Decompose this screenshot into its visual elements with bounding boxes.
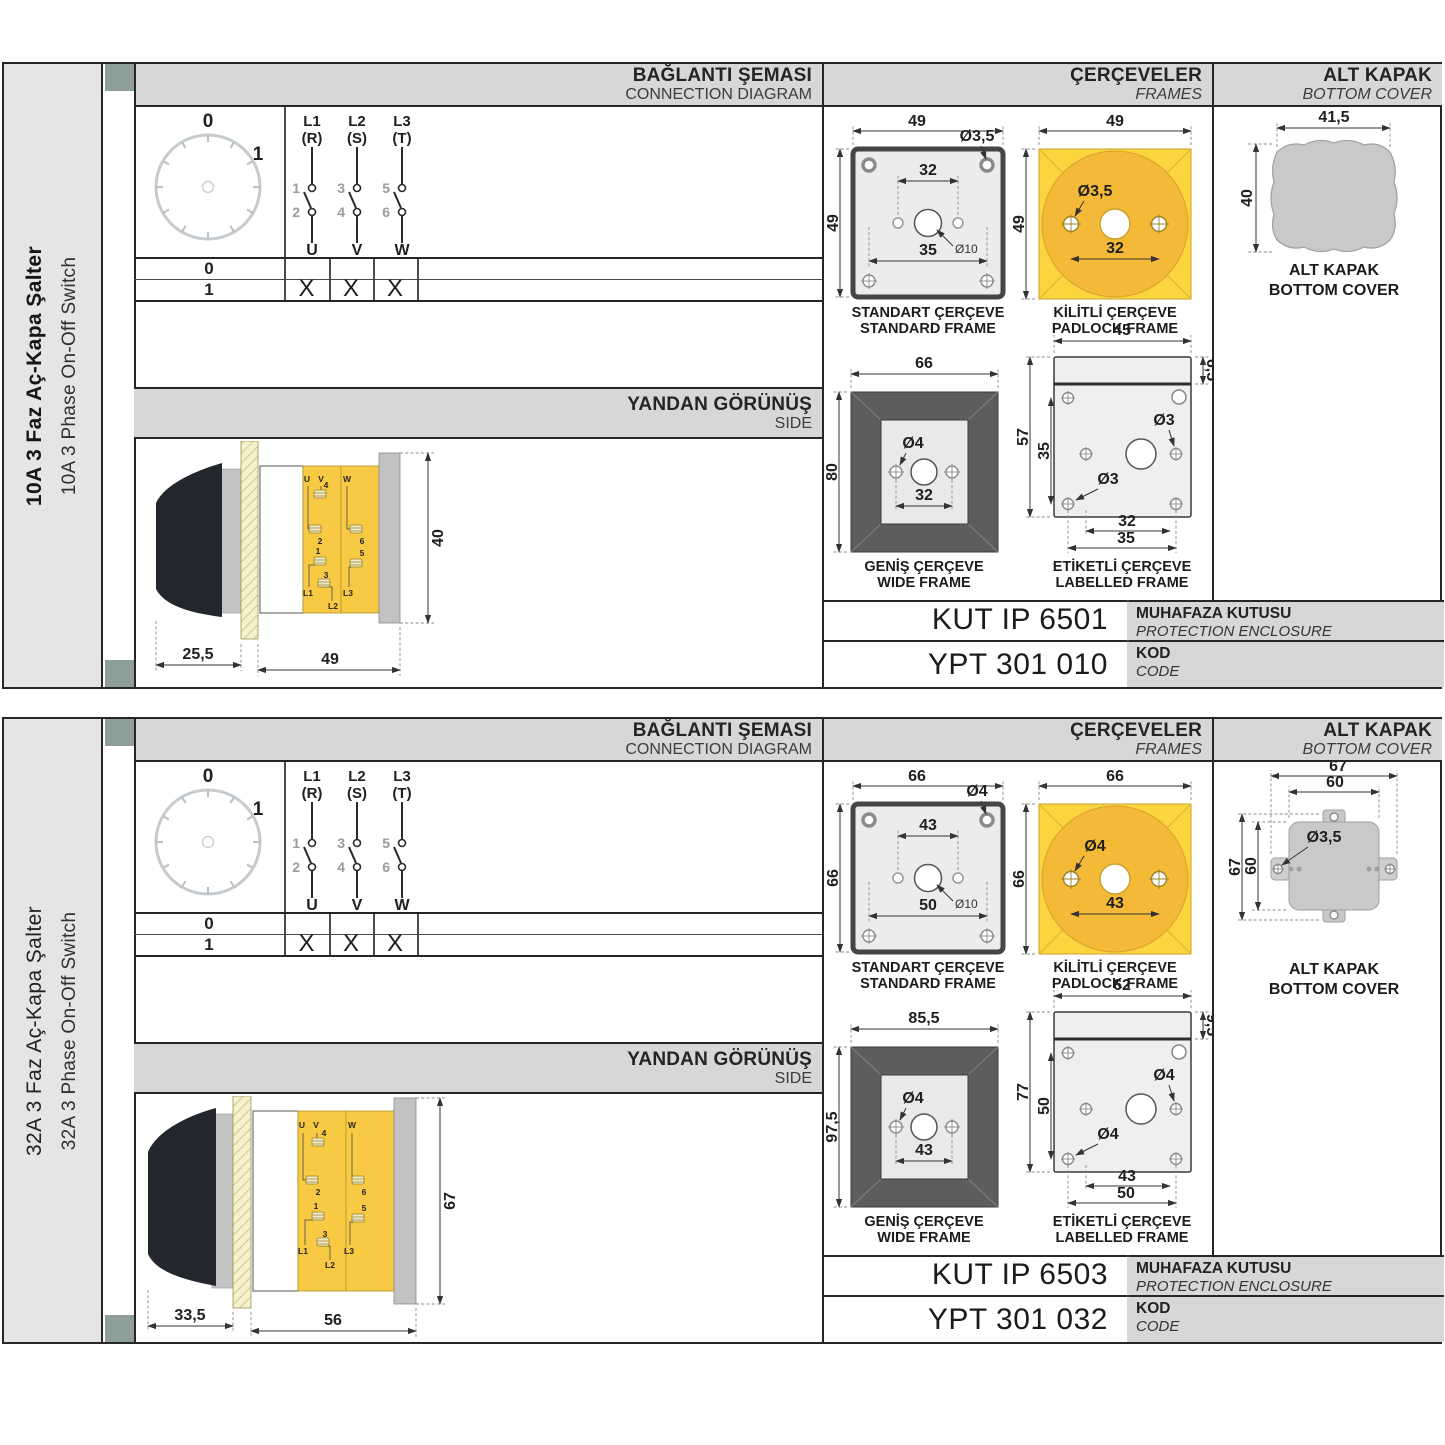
phase-l3: L3 (T) 5 6 W	[382, 113, 411, 257]
header-frames-en: FRAMES	[1135, 86, 1202, 104]
svg-text:V: V	[313, 1120, 319, 1130]
svg-text:Ø4: Ø4	[966, 783, 987, 800]
svg-text:Ø3: Ø3	[1097, 471, 1118, 488]
code-label-code: KOD CODE	[1127, 1297, 1444, 1342]
phase-l2: L2 (S) 3 4 V	[337, 768, 367, 912]
svg-text:L2: L2	[325, 1260, 335, 1270]
product-panel-32a: 32A 3 Faz Aç-Kapa Şalter 32A 3 Phase On-…	[2, 717, 1442, 1344]
svg-text:1: 1	[316, 546, 321, 556]
svg-text:(T): (T)	[392, 130, 411, 147]
svg-text:5: 5	[382, 180, 390, 196]
bottom-cover-drawing: 41,5 40 ALT KAPAK BOTTOM COVER	[1214, 107, 1442, 357]
svg-text:BOTTOM COVER: BOTTOM COVER	[1269, 981, 1400, 998]
svg-text:GENİŞ ÇERÇEVE: GENİŞ ÇERÇEVE	[864, 558, 984, 575]
svg-text:5: 5	[360, 548, 365, 558]
switch-handle	[148, 1108, 216, 1286]
svg-text:(S): (S)	[347, 785, 367, 802]
svg-text:Ø4: Ø4	[902, 1090, 923, 1107]
dim-cover-hole: Ø3,5	[1307, 829, 1342, 846]
svg-text:49: 49	[908, 113, 926, 130]
svg-text:49: 49	[1106, 113, 1124, 130]
svg-text:L1: L1	[303, 113, 321, 130]
tab-square-bottom	[105, 1315, 134, 1342]
svg-text:GENİŞ ÇERÇEVE: GENİŞ ÇERÇEVE	[864, 1213, 984, 1230]
svg-text:L3: L3	[393, 113, 411, 130]
labelled-frame-drawing: Ø4 Ø4 62 9,5 77 50 43 50 ETİKETLİ ÇERÇEV…	[1015, 977, 1212, 1246]
svg-text:6: 6	[360, 536, 365, 546]
bottom-cover-drawing: 67 60 67 60 Ø3,5 ALT KAPAK BOTTOM COVER	[1214, 762, 1442, 1052]
svg-text:Ø3,5: Ø3,5	[960, 128, 995, 145]
svg-text:L2: L2	[328, 601, 338, 611]
svg-text:STANDART ÇERÇEVE: STANDART ÇERÇEVE	[852, 960, 1005, 976]
svg-text:U: U	[306, 242, 318, 257]
product-code: YPT 301 032	[822, 1297, 1118, 1342]
svg-text:L1: L1	[303, 768, 321, 785]
svg-text:WIDE FRAME: WIDE FRAME	[877, 575, 971, 591]
dim-body-height: 67	[442, 1192, 459, 1210]
product-code: YPT 301 010	[822, 642, 1118, 687]
dial-position-1: 1	[253, 144, 264, 165]
table-row-1-label: 1	[134, 935, 284, 955]
enclosure-code: KUT IP 6503	[822, 1257, 1118, 1293]
dim-handle-depth: 33,5	[174, 1307, 205, 1324]
svg-text:50: 50	[1036, 1097, 1053, 1115]
side-view-header: YANDAN GÖRÜNÜŞ SIDE	[134, 387, 822, 439]
tab-square-top	[105, 64, 134, 91]
side-view-drawing: U V W 4 2 1 3 6 5 L1 L2 L3 33,5 56 67	[134, 1096, 564, 1344]
svg-text:4: 4	[324, 480, 329, 490]
svg-text:W: W	[394, 897, 410, 912]
product-sidebar: 10A 3 Faz Aç-Kapa Şalter 10A 3 Phase On-…	[4, 64, 103, 687]
svg-text:1: 1	[292, 835, 300, 851]
standard-frame-drawing: 49 Ø3,5 49 32 Ø10 35 STANDART ÇERÇEVE ST…	[825, 113, 1005, 337]
table-row-1-label: 1	[134, 280, 284, 300]
svg-text:50: 50	[1117, 1185, 1135, 1202]
svg-text:LABELLED FRAME: LABELLED FRAME	[1056, 575, 1189, 591]
svg-text:KİLİTLİ ÇERÇEVE: KİLİTLİ ÇERÇEVE	[1053, 959, 1177, 976]
svg-text:6,5: 6,5	[1203, 359, 1212, 381]
phase-l1: L1 (R) 1 2 U	[292, 113, 322, 257]
svg-text:32: 32	[1118, 513, 1136, 530]
svg-text:L2: L2	[348, 113, 366, 130]
product-title-tr: 10A 3 Faz Aç-Kapa Şalter	[23, 245, 47, 505]
product-panel-10a: 10A 3 Faz Aç-Kapa Şalter 10A 3 Phase On-…	[2, 62, 1442, 689]
svg-text:WIDE FRAME: WIDE FRAME	[877, 1230, 971, 1246]
svg-text:W: W	[394, 242, 410, 257]
product-sidebar: 32A 3 Faz Aç-Kapa Şalter 32A 3 Phase On-…	[4, 719, 103, 1342]
rotary-dial-diagram: 0 1	[134, 107, 284, 257]
svg-text:62: 62	[1113, 977, 1131, 994]
svg-text:0: 0	[203, 766, 214, 787]
svg-text:(R): (R)	[302, 785, 323, 802]
header-connection-en: CONNECTION DIAGRAM	[625, 86, 812, 104]
svg-text:Ø3,5: Ø3,5	[1078, 183, 1113, 200]
svg-text:66: 66	[825, 869, 842, 887]
panel-hatch	[233, 1096, 251, 1308]
header-cover-tr: ALT KAPAK	[1323, 65, 1432, 86]
svg-text:80: 80	[824, 463, 841, 481]
table-mark-u: X	[285, 279, 328, 300]
svg-text:LABELLED FRAME: LABELLED FRAME	[1056, 1230, 1189, 1246]
tab-square-bottom	[105, 660, 134, 687]
header-frames-tr: ÇERÇEVELER	[1070, 65, 1202, 86]
table-mark-u: X	[285, 934, 328, 955]
svg-text:57: 57	[1015, 428, 1032, 446]
side-view-header-tr: YANDAN GÖRÜNÜŞ	[627, 394, 812, 415]
svg-text:(S): (S)	[347, 130, 367, 147]
svg-text:L1: L1	[303, 588, 313, 598]
svg-text:Ø10: Ø10	[955, 897, 978, 911]
dim-cover-width: 41,5	[1318, 109, 1349, 126]
svg-text:4: 4	[322, 1128, 327, 1138]
contact-diagram: L1 (R) 1 2 U L2 (S) 3 4 V L3 (T)	[286, 107, 822, 257]
dim-body-height: 40	[430, 529, 447, 547]
dim-cover-h2: 60	[1243, 857, 1260, 875]
svg-text:43: 43	[1118, 1168, 1136, 1185]
svg-text:43: 43	[915, 1142, 933, 1159]
svg-text:ETİKETLİ ÇERÇEVE: ETİKETLİ ÇERÇEVE	[1053, 558, 1192, 575]
header-connection: BAĞLANTI ŞEMASI CONNECTION DIAGRAM	[134, 64, 822, 107]
svg-text:32: 32	[1106, 240, 1124, 257]
svg-text:35: 35	[1036, 442, 1053, 460]
svg-text:32: 32	[919, 162, 937, 179]
padlock-frame-drawing: Ø4 43 66 66 KİLİTLİ ÇERÇEVE PADLOCK FRAM…	[1011, 768, 1191, 992]
svg-text:L1: L1	[298, 1246, 308, 1256]
svg-text:2: 2	[318, 536, 323, 546]
svg-text:L3: L3	[343, 588, 353, 598]
svg-text:43: 43	[1106, 895, 1124, 912]
svg-text:66: 66	[908, 768, 926, 785]
svg-text:4: 4	[337, 204, 345, 220]
svg-text:5: 5	[362, 1203, 367, 1213]
svg-text:Ø4: Ø4	[902, 435, 923, 452]
svg-text:97,5: 97,5	[824, 1111, 841, 1142]
svg-text:KİLİTLİ ÇERÇEVE: KİLİTLİ ÇERÇEVE	[1053, 304, 1177, 321]
svg-text:U: U	[304, 474, 310, 484]
svg-text:3: 3	[337, 835, 345, 851]
svg-text:U: U	[299, 1120, 305, 1130]
header-connection-tr: BAĞLANTI ŞEMASI	[633, 65, 812, 86]
svg-text:6: 6	[382, 859, 390, 875]
svg-text:2: 2	[292, 859, 300, 875]
svg-text:85,5: 85,5	[908, 1010, 939, 1027]
svg-text:43: 43	[919, 817, 937, 834]
product-title-en: 32A 3 Phase On-Off Switch	[59, 911, 81, 1149]
header-connection: BAĞLANTI ŞEMASI CONNECTION DIAGRAM	[134, 719, 822, 762]
cover-shape	[1271, 140, 1397, 251]
header-cover: ALT KAPAK BOTTOM COVER	[1212, 64, 1442, 107]
svg-text:1: 1	[292, 180, 300, 196]
terminal-block-b	[346, 1111, 394, 1291]
svg-text:(T): (T)	[392, 785, 411, 802]
table-mark-v: X	[330, 279, 372, 300]
svg-text:U: U	[306, 897, 318, 912]
svg-text:6: 6	[362, 1187, 367, 1197]
table-mark-w: X	[374, 279, 416, 300]
standard-frame-drawing: 66 Ø4 66 43 Ø10 50 STANDART ÇERÇEVE STAN…	[825, 768, 1005, 992]
svg-text:1: 1	[314, 1201, 319, 1211]
svg-text:3: 3	[324, 570, 329, 580]
dim-cover-w2: 60	[1326, 774, 1344, 791]
frames-cell: 66 Ø4 66 43 Ø10 50 STANDART ÇERÇEVE STAN…	[824, 762, 1212, 1255]
svg-text:L3: L3	[393, 768, 411, 785]
svg-text:35: 35	[919, 242, 937, 259]
wide-frame-drawing: Ø4 43 85,5 97,5 GENİŞ ÇERÇEVE WIDE FRAME	[824, 1010, 998, 1246]
phase-l3: L3 (T) 5 6 W	[382, 768, 411, 912]
svg-text:ALT KAPAK: ALT KAPAK	[1289, 961, 1380, 978]
rotary-dial-diagram: 0 1	[134, 762, 284, 912]
side-view-header: YANDAN GÖRÜNÜŞ SIDE	[134, 1042, 822, 1094]
svg-text:STANDARD FRAME: STANDARD FRAME	[860, 321, 996, 337]
svg-text:(R): (R)	[302, 130, 323, 147]
svg-text:4: 4	[337, 859, 345, 875]
code-label-enclosure: MUHAFAZA KUTUSU PROTECTION ENCLOSURE	[1127, 1257, 1444, 1295]
svg-text:Ø10: Ø10	[955, 242, 978, 256]
switch-handle	[156, 463, 222, 617]
svg-text:66: 66	[915, 355, 933, 372]
svg-text:ETİKETLİ ÇERÇEVE: ETİKETLİ ÇERÇEVE	[1053, 1213, 1192, 1230]
dim-cover-h1: 67	[1227, 858, 1244, 876]
header-cover-en: BOTTOM COVER	[1303, 86, 1433, 104]
product-title-tr: 32A 3 Faz Aç-Kapa Şalter	[23, 905, 47, 1155]
svg-text:77: 77	[1015, 1083, 1032, 1101]
svg-text:W: W	[343, 474, 352, 484]
svg-text:2: 2	[292, 204, 300, 220]
dim-body-width: 56	[324, 1312, 342, 1329]
svg-text:ALT KAPAK: ALT KAPAK	[1289, 262, 1380, 279]
svg-text:66: 66	[1011, 870, 1028, 888]
table-row-0-label: 0	[134, 914, 284, 934]
svg-text:Ø3: Ø3	[1153, 412, 1174, 429]
dim-body-width: 49	[321, 651, 339, 668]
svg-text:L2: L2	[348, 768, 366, 785]
tab-strip	[105, 719, 134, 1342]
table-mark-v: X	[330, 934, 372, 955]
svg-text:49: 49	[1011, 215, 1028, 233]
svg-text:50: 50	[919, 897, 937, 914]
svg-text:STANDARD FRAME: STANDARD FRAME	[860, 976, 996, 992]
svg-text:49: 49	[825, 214, 842, 232]
tab-strip	[105, 64, 134, 687]
header-frames: ÇERÇEVELER FRAMES	[822, 64, 1212, 107]
svg-text:9,5: 9,5	[1203, 1014, 1212, 1036]
wide-frame-drawing: Ø4 32 66 80 GENİŞ ÇERÇEVE WIDE FRAME	[824, 355, 998, 591]
svg-text:V: V	[352, 897, 363, 912]
svg-text:V: V	[352, 242, 363, 257]
svg-text:2: 2	[316, 1187, 321, 1197]
svg-text:Ø4: Ø4	[1153, 1067, 1174, 1084]
table-row-0-label: 0	[134, 259, 284, 279]
svg-text:6: 6	[382, 204, 390, 220]
svg-text:L3: L3	[344, 1246, 354, 1256]
svg-text:W: W	[348, 1120, 357, 1130]
svg-text:1: 1	[253, 799, 264, 820]
side-view-drawing: U V W 4 2 1 3 6 5 L1 L2 L3 25,5 49 40	[134, 441, 564, 687]
svg-text:66: 66	[1106, 768, 1124, 785]
dim-cover-height: 40	[1239, 189, 1256, 207]
svg-text:Ø4: Ø4	[1097, 1126, 1118, 1143]
side-view-header-en: SIDE	[775, 415, 812, 433]
table-mark-w: X	[374, 934, 416, 955]
svg-text:BOTTOM COVER: BOTTOM COVER	[1269, 282, 1400, 299]
phase-l2: L2 (S) 3 4 V	[337, 113, 367, 257]
header-cover: ALT KAPAK BOTTOM COVER	[1212, 719, 1442, 762]
dial-position-0: 0	[203, 111, 214, 132]
svg-text:45: 45	[1113, 322, 1131, 339]
enclosure-code: KUT IP 6501	[822, 602, 1118, 638]
header-frames: ÇERÇEVELER FRAMES	[822, 719, 1212, 762]
svg-text:STANDART ÇERÇEVE: STANDART ÇERÇEVE	[852, 305, 1005, 321]
svg-text:5: 5	[382, 835, 390, 851]
svg-text:35: 35	[1117, 530, 1135, 547]
padlock-frame-drawing: Ø3,5 32 49 49 KİLİTLİ ÇERÇEVE PADLOCK FR…	[1011, 113, 1191, 337]
contact-diagram: L1 (R) 1 2 U L2 (S) 3 4 V L3 (T)	[286, 762, 822, 912]
phase-l1: L1 (R) 1 2 U	[292, 768, 322, 912]
code-label-enclosure: MUHAFAZA KUTUSU PROTECTION ENCLOSURE	[1127, 602, 1444, 640]
svg-text:32: 32	[915, 487, 933, 504]
dim-handle-depth: 25,5	[182, 646, 213, 663]
code-label-code: KOD CODE	[1127, 642, 1444, 687]
svg-text:3: 3	[337, 180, 345, 196]
labelled-frame-drawing: Ø3 Ø3 45 6,5 57 35 32 35 ETİKETLİ ÇERÇEV…	[1015, 322, 1212, 591]
frames-cell: 49 Ø3,5 49 32 Ø10 35 STANDART ÇERÇEVE ST…	[824, 107, 1212, 600]
svg-text:3: 3	[323, 1229, 328, 1239]
tab-square-top	[105, 719, 134, 746]
svg-text:Ø4: Ø4	[1084, 838, 1105, 855]
panel-hatch	[241, 441, 258, 639]
product-title-en: 10A 3 Phase On-Off Switch	[59, 256, 81, 494]
